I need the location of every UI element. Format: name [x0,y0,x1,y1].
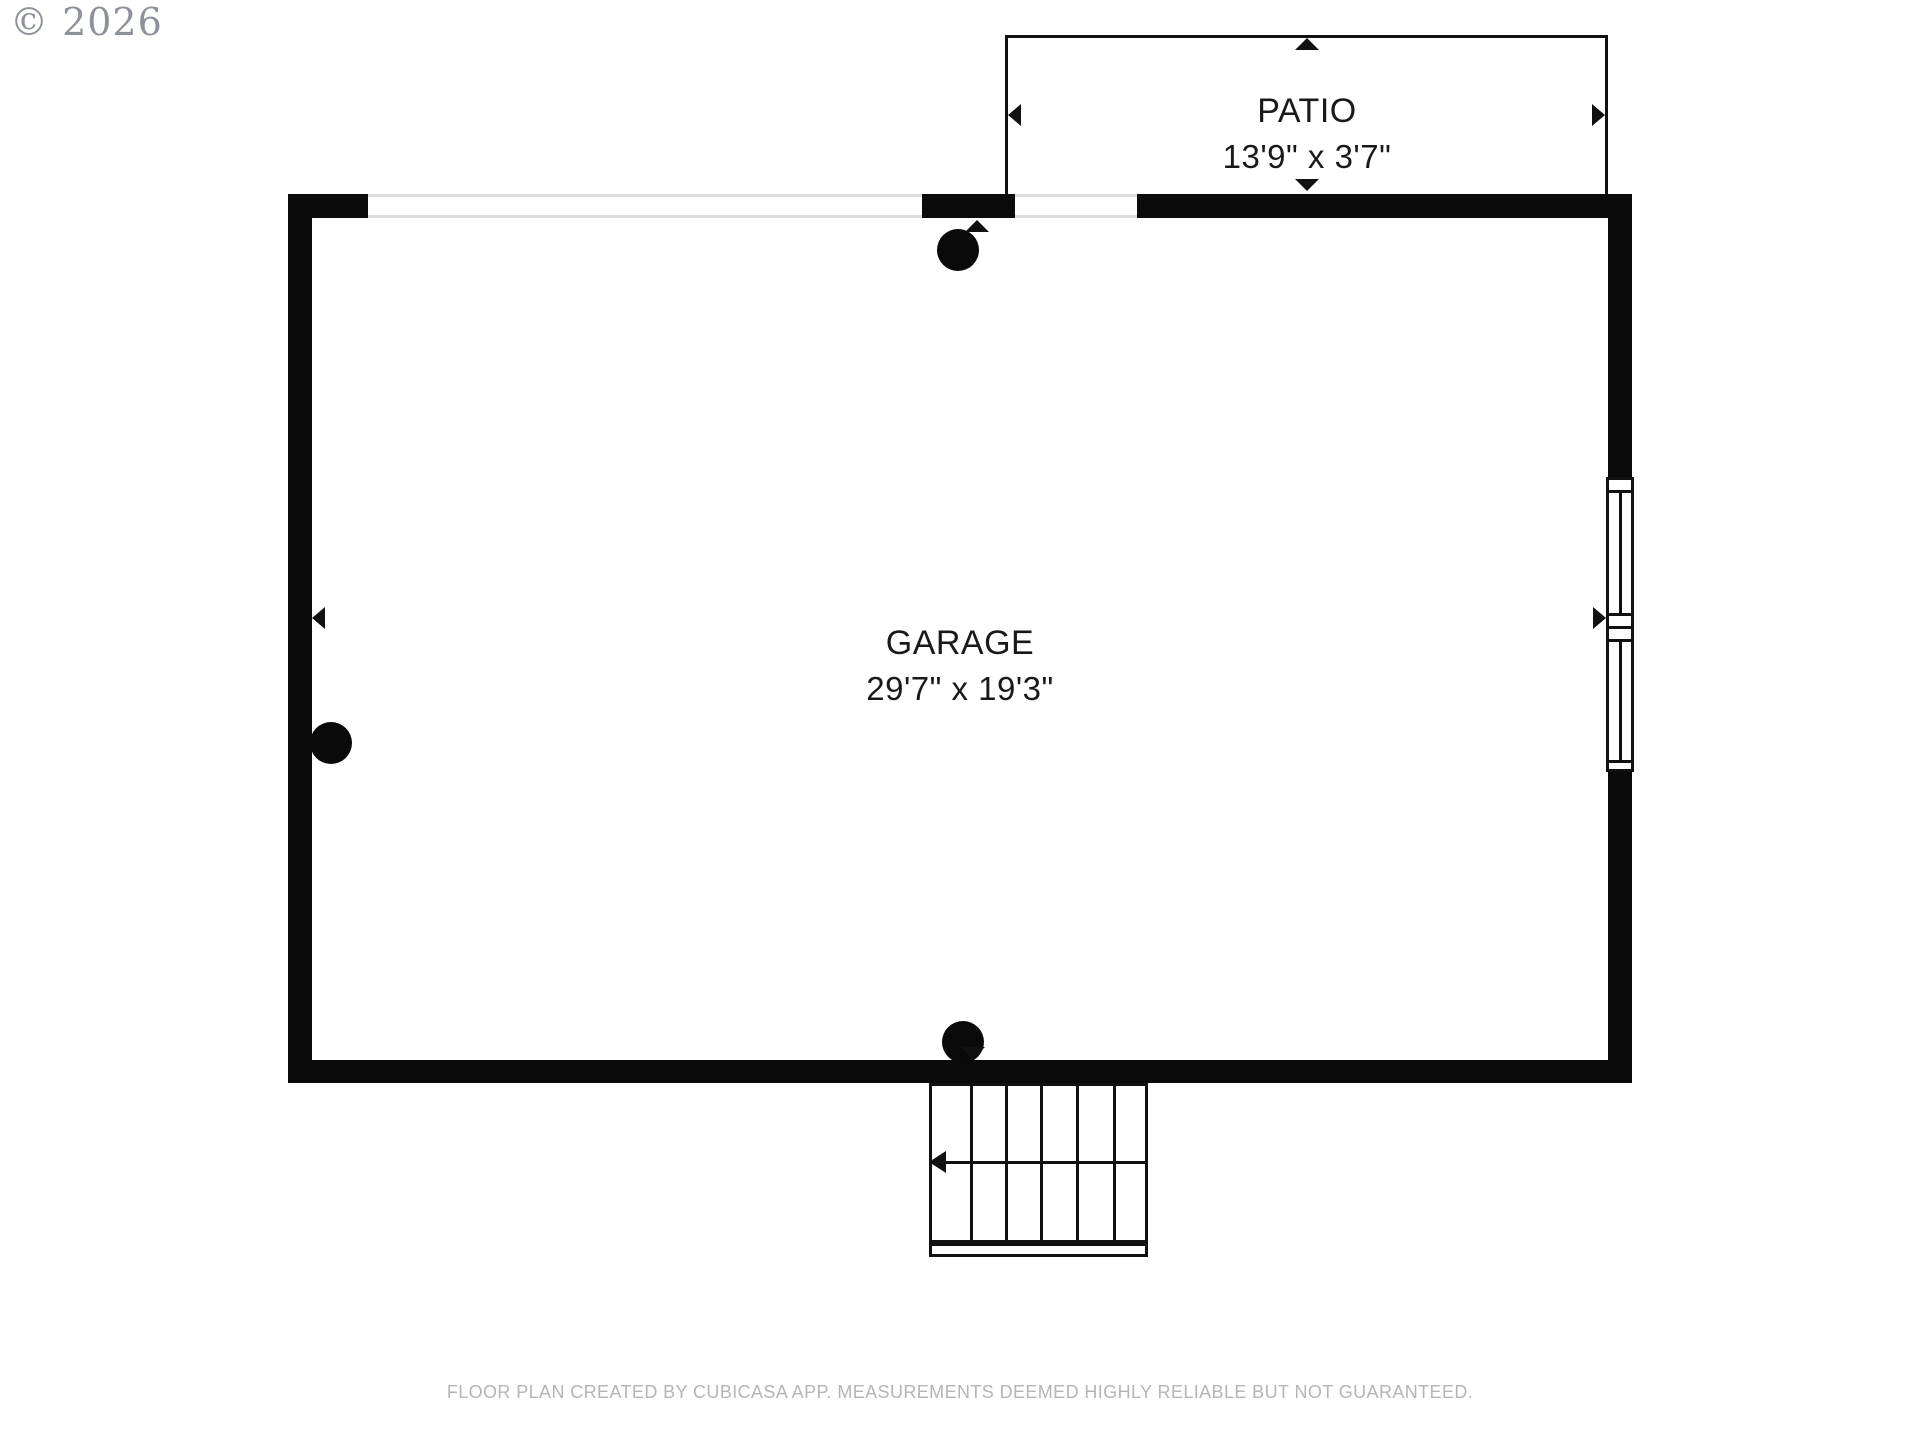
window-mullion-icon [1619,492,1622,613]
door-marker-left [310,722,352,764]
garage-door-opening [368,194,922,218]
floor-plan-canvas: © 2026 PATIO 13'9" x 3'7" GARAGE 29' [0,0,1920,1440]
window-right-wall [1606,477,1634,772]
wall-right-upper [1608,194,1632,477]
garage-dim-arrow-left-icon [312,607,325,629]
garage-label: GARAGE 29'7" x 19'3" [760,620,1160,712]
room-name: PATIO [1107,88,1507,134]
room-name: GARAGE [760,620,1160,666]
footer-disclaimer: FLOOR PLAN CREATED BY CUBICASA APP. MEAS… [0,1382,1920,1403]
patio-dim-arrow-up-icon [1295,38,1319,50]
garage-dim-arrow-right-icon [1593,607,1606,629]
wall-bottom [288,1060,1632,1083]
patio-dim-arrow-down-icon [1295,179,1319,191]
room-dimensions: 29'7" x 19'3" [760,666,1160,712]
patio-label: PATIO 13'9" x 3'7" [1107,88,1507,180]
stairs-walkline-icon [946,1161,1146,1164]
patio-dim-arrow-right-icon [1592,104,1605,126]
door-marker-top [937,229,979,271]
copyright-watermark: © 2026 [10,0,163,44]
stairs-landing [929,1243,1148,1257]
patio-opening [1015,194,1137,218]
window-rail-icon [1609,613,1631,616]
room-dimensions: 13'9" x 3'7" [1107,134,1507,180]
wall-left [288,194,312,1083]
window-rail-icon [1609,626,1631,629]
patio-dim-arrow-left-icon [1008,104,1021,126]
wall-top-right [1137,194,1632,218]
window-mullion-icon [1619,641,1622,761]
stairs-direction-arrow-icon [929,1151,946,1173]
wall-right-lower [1608,772,1632,1083]
garage-dim-arrow-up-icon [965,220,989,232]
garage-dim-arrow-down-icon [961,1047,985,1059]
wall-top-middle [922,194,1015,218]
